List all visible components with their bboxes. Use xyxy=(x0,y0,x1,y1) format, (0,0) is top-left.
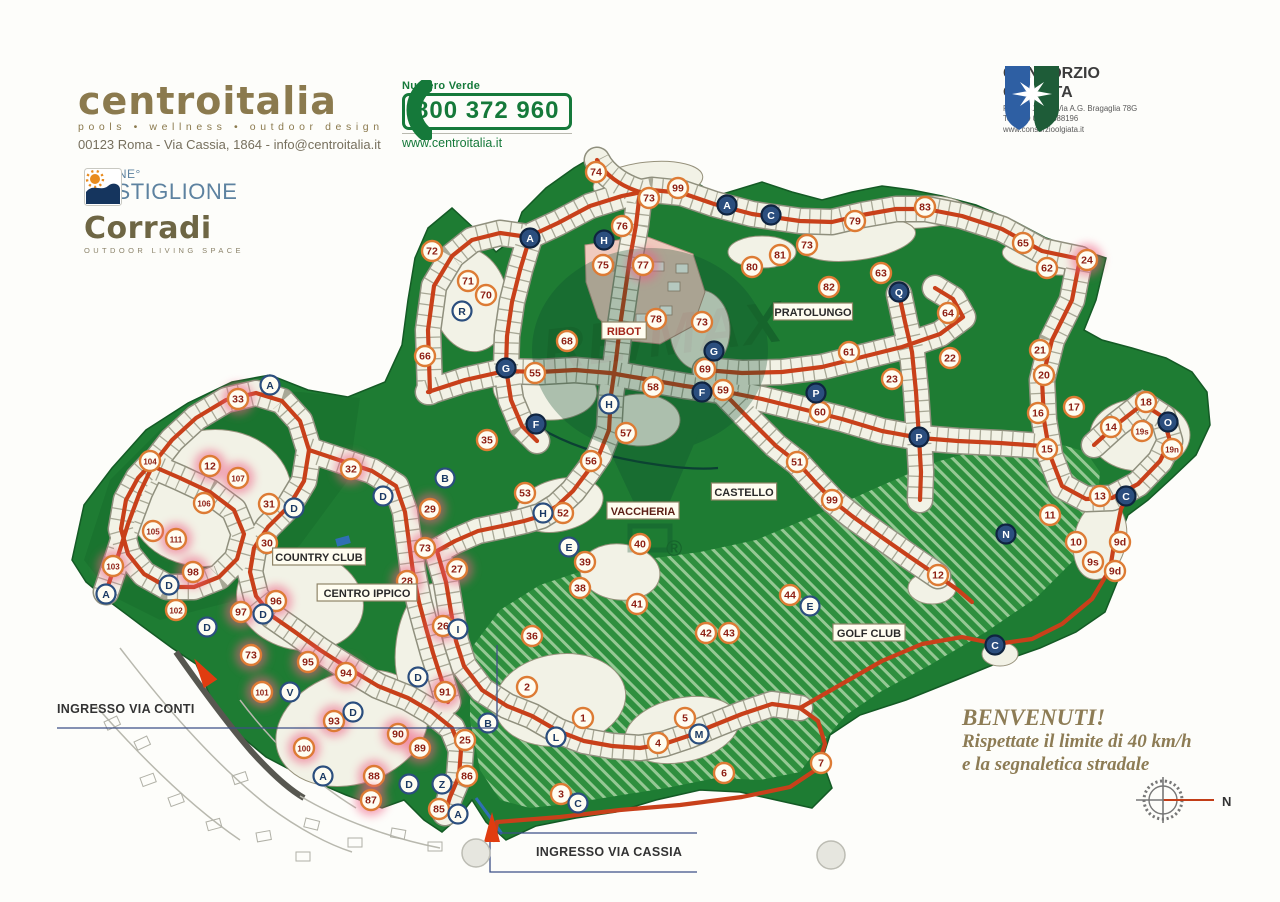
zone-marker-68: 68 xyxy=(557,331,577,351)
road-letter-D: D xyxy=(344,703,363,722)
zone-marker-79: 79 xyxy=(845,211,865,231)
svg-text:O: O xyxy=(1164,417,1172,429)
road-letter-C: C xyxy=(1117,487,1136,506)
svg-text:RIBOT: RIBOT xyxy=(607,326,642,338)
svg-text:2: 2 xyxy=(524,681,530,693)
road-letter-P: P xyxy=(910,428,929,447)
svg-text:32: 32 xyxy=(345,463,357,475)
punch-hole xyxy=(462,839,490,867)
zone-marker-80: 80 xyxy=(742,257,762,277)
svg-text:94: 94 xyxy=(340,667,352,679)
svg-text:D: D xyxy=(349,707,357,719)
svg-text:E: E xyxy=(565,542,572,554)
svg-text:41: 41 xyxy=(631,598,643,610)
road-letter-C: C xyxy=(569,794,588,813)
zone-marker-19s: 19s xyxy=(1132,421,1152,441)
svg-text:9d: 9d xyxy=(1109,565,1121,577)
road-letter-M: M xyxy=(690,725,709,744)
zone-marker-86: 86 xyxy=(457,766,477,786)
zone-marker-76: 76 xyxy=(612,216,632,236)
svg-text:107: 107 xyxy=(231,474,245,483)
svg-text:27: 27 xyxy=(451,563,463,575)
svg-text:19n: 19n xyxy=(1165,445,1179,454)
road-letter-B: B xyxy=(436,469,455,488)
svg-text:A: A xyxy=(266,380,274,392)
svg-text:51: 51 xyxy=(791,456,803,468)
svg-text:82: 82 xyxy=(823,281,835,293)
zone-marker-53: 53 xyxy=(515,483,535,503)
svg-text:98: 98 xyxy=(187,566,199,578)
svg-text:H: H xyxy=(539,508,547,520)
svg-text:25: 25 xyxy=(459,734,471,746)
scanned-map-page: RE/MAX ® 7473997675777873808182797383636… xyxy=(0,0,1280,902)
svg-text:19s: 19s xyxy=(1135,427,1149,436)
road-letter-V: V xyxy=(281,683,300,702)
zone-marker-22: 22 xyxy=(940,348,960,368)
svg-text:73: 73 xyxy=(643,192,655,204)
svg-text:L: L xyxy=(553,732,560,744)
zone-marker-27: 27 xyxy=(441,553,473,585)
road-letter-A: A xyxy=(449,805,468,824)
road-letter-B: B xyxy=(479,714,498,733)
zone-marker-59: 59 xyxy=(713,380,733,400)
svg-text:CASTELLO: CASTELLO xyxy=(714,487,774,499)
zone-marker-103: 103 xyxy=(97,550,129,582)
zone-marker-15: 15 xyxy=(1037,439,1057,459)
zone-marker-35: 35 xyxy=(477,430,497,450)
svg-text:E: E xyxy=(806,601,813,613)
road-letter-H: H xyxy=(595,231,614,250)
zone-marker-60: 60 xyxy=(810,402,830,422)
zone-marker-65: 65 xyxy=(1013,233,1033,253)
olgiata-shield-icon xyxy=(1003,64,1061,138)
road-letter-C: C xyxy=(986,636,1005,655)
road-letter-D: D xyxy=(254,605,273,624)
svg-text:22: 22 xyxy=(944,352,956,364)
zone-marker-111: 111 xyxy=(160,523,192,555)
zone-marker-73: 73 xyxy=(235,639,267,671)
zone-marker-31: 31 xyxy=(259,494,279,514)
phone-icon xyxy=(398,80,432,140)
svg-text:43: 43 xyxy=(723,627,735,639)
svg-text:C: C xyxy=(767,210,775,222)
svg-text:106: 106 xyxy=(197,499,211,508)
zone-marker-63: 63 xyxy=(871,263,891,283)
zone-marker-5: 5 xyxy=(675,708,695,728)
zone-marker-75: 75 xyxy=(593,255,613,275)
svg-text:73: 73 xyxy=(696,316,708,328)
zone-marker-44: 44 xyxy=(780,585,800,605)
zone-marker-105: 105 xyxy=(143,521,163,541)
svg-text:105: 105 xyxy=(146,527,160,536)
svg-text:59: 59 xyxy=(717,384,729,396)
svg-text:31: 31 xyxy=(263,498,275,510)
zone-marker-9s: 9s xyxy=(1083,552,1103,572)
svg-text:102: 102 xyxy=(169,606,183,615)
svg-text:F: F xyxy=(533,419,540,431)
svg-text:99: 99 xyxy=(826,494,838,506)
svg-text:53: 53 xyxy=(519,487,531,499)
svg-text:D: D xyxy=(405,779,413,791)
zone-marker-100: 100 xyxy=(288,732,320,764)
svg-text:103: 103 xyxy=(106,562,120,571)
road-letter-D: D xyxy=(198,618,217,637)
corradi-tagline: OUTDOOR LIVING SPACE xyxy=(84,246,244,255)
zone-marker-81: 81 xyxy=(770,245,790,265)
zone-marker-57: 57 xyxy=(616,423,636,443)
svg-text:79: 79 xyxy=(849,215,861,227)
svg-text:A: A xyxy=(723,200,731,212)
centroitalia-logo: centroitalia pools • wellness • outdoor … xyxy=(78,82,384,152)
zone-marker-19n: 19n xyxy=(1162,439,1182,459)
svg-text:96: 96 xyxy=(270,595,282,607)
svg-text:Z: Z xyxy=(439,779,446,791)
sketch-building xyxy=(296,852,310,861)
map-label-centro-ippico: CENTRO IPPICO xyxy=(317,584,417,601)
road-letter-I: I xyxy=(449,620,468,639)
svg-text:9d: 9d xyxy=(1114,536,1126,548)
svg-text:74: 74 xyxy=(590,166,602,178)
svg-text:13: 13 xyxy=(1094,490,1106,502)
svg-text:G: G xyxy=(502,363,510,375)
svg-text:40: 40 xyxy=(634,538,646,550)
zone-marker-62: 62 xyxy=(1037,258,1057,278)
svg-text:24: 24 xyxy=(1081,254,1093,266)
zone-marker-85: 85 xyxy=(429,799,449,819)
svg-text:C: C xyxy=(574,798,582,810)
numero-verde-badge: Numero Verde 800 372 960 www.centroitali… xyxy=(398,80,572,150)
road-letter-L: L xyxy=(547,728,566,747)
svg-text:COUNTRY CLUB: COUNTRY CLUB xyxy=(275,552,362,564)
zone-marker-70: 70 xyxy=(476,285,496,305)
zone-marker-12: 12 xyxy=(928,565,948,585)
consorzio-olgiata-block: CONSORZIO OLGIATA ROMA, 00123, Via A.G. … xyxy=(1003,64,1137,134)
welcome-title: BENVENUTI! xyxy=(962,704,1192,731)
svg-text:5: 5 xyxy=(682,712,688,724)
zone-marker-74: 74 xyxy=(586,162,606,182)
svg-text:89: 89 xyxy=(414,742,426,754)
welcome-speed-limit: Rispettate il limite di 40 km/h xyxy=(962,731,1192,753)
svg-text:63: 63 xyxy=(875,267,887,279)
sketch-building xyxy=(140,773,156,786)
svg-text:12: 12 xyxy=(204,460,216,472)
zone-marker-94: 94 xyxy=(330,657,362,689)
road-letter-D: D xyxy=(374,487,393,506)
road-letter-A: A xyxy=(521,229,540,248)
sketch-building xyxy=(134,736,150,750)
svg-text:87: 87 xyxy=(365,794,377,806)
punch-hole xyxy=(817,841,845,869)
svg-text:14: 14 xyxy=(1105,421,1117,433)
road-letter-A: A xyxy=(261,376,280,395)
zone-marker-73: 73 xyxy=(797,235,817,255)
zone-marker-6: 6 xyxy=(714,763,734,783)
svg-text:G: G xyxy=(710,346,718,358)
road-letter-E: E xyxy=(801,597,820,616)
zone-marker-32: 32 xyxy=(335,453,367,485)
svg-text:73: 73 xyxy=(801,239,813,251)
road-letter-D: D xyxy=(409,668,428,687)
centroitalia-logo-text: centroitalia xyxy=(78,82,384,120)
zone-marker-87: 87 xyxy=(355,784,387,816)
road-letter-G: G xyxy=(497,359,516,378)
svg-text:76: 76 xyxy=(616,220,628,232)
zone-marker-29: 29 xyxy=(414,493,446,525)
svg-text:56: 56 xyxy=(585,455,597,467)
svg-text:90: 90 xyxy=(392,728,404,740)
zone-marker-52: 52 xyxy=(553,503,573,523)
zone-marker-99: 99 xyxy=(822,490,842,510)
zone-marker-18: 18 xyxy=(1136,392,1156,412)
svg-text:Q: Q xyxy=(895,287,903,299)
welcome-notice: BENVENUTI! Rispettate il limite di 40 km… xyxy=(962,704,1192,776)
svg-text:23: 23 xyxy=(886,373,898,385)
road-letter-A: A xyxy=(314,767,333,786)
svg-text:78: 78 xyxy=(650,313,662,325)
svg-text:39: 39 xyxy=(579,556,591,568)
zone-marker-73: 73 xyxy=(639,188,659,208)
svg-text:A: A xyxy=(319,771,327,783)
zone-marker-61: 61 xyxy=(839,342,859,362)
zone-marker-95: 95 xyxy=(292,646,324,678)
zone-marker-51: 51 xyxy=(787,452,807,472)
piscine-castiglione-logo: PISCINE° CASTIGLIONE xyxy=(84,168,237,203)
svg-text:68: 68 xyxy=(561,335,573,347)
svg-text:P: P xyxy=(812,388,819,400)
zone-marker-77: 77 xyxy=(627,249,659,281)
svg-text:83: 83 xyxy=(919,201,931,213)
zone-marker-73: 73 xyxy=(409,532,441,564)
zone-marker-83: 83 xyxy=(915,197,935,217)
svg-text:93: 93 xyxy=(328,715,340,727)
road-letter-H: H xyxy=(600,395,619,414)
road-letter-O: O xyxy=(1159,413,1178,432)
zone-marker-13: 13 xyxy=(1090,486,1110,506)
zone-marker-16: 16 xyxy=(1028,403,1048,423)
svg-text:101: 101 xyxy=(255,688,269,697)
svg-text:VACCHERIA: VACCHERIA xyxy=(611,506,676,518)
piscine-castiglione-icon xyxy=(84,168,122,206)
svg-text:95: 95 xyxy=(302,656,314,668)
svg-text:12: 12 xyxy=(932,569,944,581)
entrance-label-via-conti: INGRESSO VIA CONTI xyxy=(57,702,195,716)
svg-text:81: 81 xyxy=(774,249,786,261)
svg-text:62: 62 xyxy=(1041,262,1053,274)
zone-marker-33: 33 xyxy=(222,383,254,415)
svg-text:52: 52 xyxy=(557,507,569,519)
svg-text:64: 64 xyxy=(942,307,954,319)
zone-marker-98: 98 xyxy=(177,556,209,588)
zone-marker-66: 66 xyxy=(415,346,435,366)
svg-text:104: 104 xyxy=(143,457,157,466)
svg-text:H: H xyxy=(600,235,608,247)
svg-text:26: 26 xyxy=(437,620,449,632)
svg-text:20: 20 xyxy=(1038,369,1050,381)
svg-text:18: 18 xyxy=(1140,396,1152,408)
svg-text:17: 17 xyxy=(1068,401,1080,413)
zone-marker-58: 58 xyxy=(643,377,663,397)
svg-text:D: D xyxy=(290,503,298,515)
svg-text:30: 30 xyxy=(261,537,273,549)
svg-text:70: 70 xyxy=(480,289,492,301)
zone-marker-24: 24 xyxy=(1071,244,1103,276)
zone-marker-56: 56 xyxy=(581,451,601,471)
svg-text:D: D xyxy=(414,672,422,684)
zone-marker-1: 1 xyxy=(573,708,593,728)
sketch-building xyxy=(232,772,248,785)
zone-marker-107: 107 xyxy=(222,462,254,494)
svg-text:97: 97 xyxy=(235,606,247,618)
road-letter-H: H xyxy=(534,504,553,523)
entrance-label-via-cassia: INGRESSO VIA CASSIA xyxy=(536,845,682,859)
zone-marker-41: 41 xyxy=(627,594,647,614)
zone-marker-71: 71 xyxy=(458,271,478,291)
sketch-building xyxy=(304,818,320,830)
zone-marker-9d: 9d xyxy=(1110,532,1130,552)
svg-text:PRATOLUNGO: PRATOLUNGO xyxy=(774,307,852,319)
svg-text:99: 99 xyxy=(672,182,684,194)
svg-text:H: H xyxy=(605,399,613,411)
zone-marker-104: 104 xyxy=(140,451,160,471)
zone-marker-78: 78 xyxy=(646,309,666,329)
svg-text:33: 33 xyxy=(232,393,244,405)
svg-text:GOLF CLUB: GOLF CLUB xyxy=(837,628,901,640)
map-label-country-club: COUNTRY CLUB xyxy=(273,548,366,565)
remax-registered-mark: ® xyxy=(666,536,682,561)
svg-text:75: 75 xyxy=(597,259,609,271)
road-letter-A: A xyxy=(97,585,116,604)
svg-text:71: 71 xyxy=(462,275,474,287)
road-letter-N: N xyxy=(997,525,1016,544)
zone-marker-7: 7 xyxy=(811,753,831,773)
road-letter-P: P xyxy=(807,384,826,403)
road-letter-Q: Q xyxy=(890,283,909,302)
zone-marker-99: 99 xyxy=(668,178,688,198)
zone-marker-12: 12 xyxy=(194,450,226,482)
zone-marker-38: 38 xyxy=(570,578,590,598)
svg-text:35: 35 xyxy=(481,434,493,446)
zone-marker-91: 91 xyxy=(429,676,461,708)
zone-marker-64: 64 xyxy=(938,303,958,323)
svg-text:A: A xyxy=(454,809,462,821)
svg-text:A: A xyxy=(526,233,534,245)
road-letter-D: D xyxy=(160,576,179,595)
svg-text:88: 88 xyxy=(368,770,380,782)
svg-text:69: 69 xyxy=(699,363,711,375)
zone-marker-42: 42 xyxy=(696,623,716,643)
zone-marker-20: 20 xyxy=(1034,365,1054,385)
svg-text:F: F xyxy=(699,387,706,399)
svg-text:R: R xyxy=(458,306,466,318)
svg-text:57: 57 xyxy=(620,427,632,439)
svg-text:D: D xyxy=(165,580,173,592)
zone-marker-23: 23 xyxy=(882,369,902,389)
svg-text:C: C xyxy=(1122,491,1130,503)
zone-marker-39: 39 xyxy=(575,552,595,572)
zone-marker-82: 82 xyxy=(819,277,839,297)
svg-text:A: A xyxy=(102,589,110,601)
svg-text:I: I xyxy=(457,624,460,636)
road-letter-D: D xyxy=(400,775,419,794)
svg-text:42: 42 xyxy=(700,627,712,639)
road-letter-A: A xyxy=(718,196,737,215)
svg-text:29: 29 xyxy=(424,503,436,515)
zone-marker-21: 21 xyxy=(1030,340,1050,360)
svg-text:D: D xyxy=(379,491,387,503)
svg-text:11: 11 xyxy=(1044,509,1055,521)
zone-marker-72: 72 xyxy=(422,241,442,261)
svg-text:6: 6 xyxy=(721,767,727,779)
svg-text:1: 1 xyxy=(580,712,586,724)
svg-text:55: 55 xyxy=(529,367,541,379)
svg-text:7: 7 xyxy=(818,757,824,769)
compass-north-label: N xyxy=(1222,794,1231,809)
road-letter-F: F xyxy=(527,415,546,434)
svg-text:C: C xyxy=(991,640,999,652)
centroitalia-address: 00123 Roma - Via Cassia, 1864 - info@cen… xyxy=(78,137,384,152)
svg-text:66: 66 xyxy=(419,350,431,362)
zone-marker-55: 55 xyxy=(525,363,545,383)
zone-marker-102: 102 xyxy=(166,600,186,620)
zone-marker-36: 36 xyxy=(522,626,542,646)
svg-text:N: N xyxy=(1002,529,1010,541)
zone-marker-10: 10 xyxy=(1066,532,1086,552)
centroitalia-tagline: pools • wellness • outdoor design xyxy=(78,121,384,133)
zone-marker-89: 89 xyxy=(404,732,436,764)
welcome-signage: e la segnaletica stradale xyxy=(962,754,1192,776)
svg-text:9s: 9s xyxy=(1087,556,1099,568)
svg-text:3: 3 xyxy=(558,788,564,800)
zone-marker-43: 43 xyxy=(719,623,739,643)
svg-text:44: 44 xyxy=(784,589,796,601)
svg-text:100: 100 xyxy=(297,744,311,753)
svg-text:16: 16 xyxy=(1032,407,1044,419)
svg-text:38: 38 xyxy=(574,582,586,594)
svg-text:60: 60 xyxy=(814,406,826,418)
zone-marker-25: 25 xyxy=(455,730,475,750)
svg-text:61: 61 xyxy=(843,346,855,358)
map-label-vaccheria: VACCHERIA xyxy=(607,502,679,519)
zone-marker-17: 17 xyxy=(1064,397,1084,417)
road-letter-F: F xyxy=(693,383,712,402)
corradi-logo-text: Corradi xyxy=(84,214,244,244)
road-letter-E: E xyxy=(560,538,579,557)
zone-marker-4: 4 xyxy=(648,733,668,753)
svg-text:58: 58 xyxy=(647,381,659,393)
zone-marker-9d: 9d xyxy=(1105,561,1125,581)
svg-text:86: 86 xyxy=(461,770,473,782)
svg-text:85: 85 xyxy=(433,803,445,815)
map-label-ribot: RIBOT xyxy=(602,322,647,339)
svg-text:65: 65 xyxy=(1017,237,1029,249)
svg-text:111: 111 xyxy=(170,535,183,544)
zone-marker-40: 40 xyxy=(630,534,650,554)
road-letter-D: D xyxy=(285,499,304,518)
svg-text:21: 21 xyxy=(1034,344,1046,356)
map-label-pratolungo: PRATOLUNGO xyxy=(774,303,853,320)
svg-text:P: P xyxy=(915,432,922,444)
sketch-building xyxy=(348,838,362,847)
road-letter-Z: Z xyxy=(433,775,452,794)
compass-rose: N xyxy=(1136,777,1231,823)
zone-marker-101: 101 xyxy=(246,676,278,708)
road-letter-R: R xyxy=(453,302,472,321)
zone-marker-73: 73 xyxy=(692,312,712,332)
svg-text:73: 73 xyxy=(419,542,431,554)
zone-marker-2: 2 xyxy=(517,677,537,697)
map-label-golf-club: GOLF CLUB xyxy=(833,624,905,641)
sketch-building xyxy=(256,831,271,842)
